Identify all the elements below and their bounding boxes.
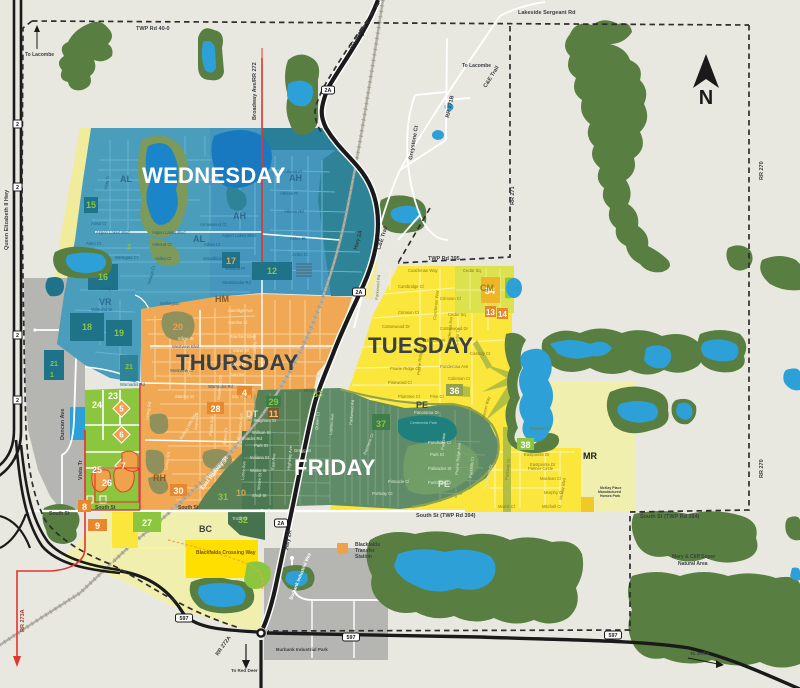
svg-text:Lakeside Sergeant Rd: Lakeside Sergeant Rd xyxy=(518,10,575,16)
svg-text:Pinetree Cl: Pinetree Cl xyxy=(530,426,551,431)
svg-text:Queen Elizabeth II Hwy: Queen Elizabeth II Hwy xyxy=(4,189,10,250)
svg-text:Aspen Lakes Blvd: Aspen Lakes Blvd xyxy=(222,233,256,238)
svg-text:Cassidy Ct: Cassidy Ct xyxy=(470,351,491,356)
svg-text:AL: AL xyxy=(120,174,132,184)
svg-text:Woodbine Ct: Woodbine Ct xyxy=(203,256,228,261)
svg-text:South St (TWP Rd 394): South St (TWP Rd 394) xyxy=(416,513,476,519)
svg-text:RR 270: RR 270 xyxy=(759,161,765,180)
svg-text:597: 597 xyxy=(180,616,189,622)
svg-text:19: 19 xyxy=(114,328,124,338)
svg-text:Prairie Ridge Cl: Prairie Ridge Cl xyxy=(390,366,419,371)
svg-text:Ponderosa Ave: Ponderosa Ave xyxy=(440,364,469,369)
svg-text:6: 6 xyxy=(119,431,124,440)
svg-text:16: 16 xyxy=(98,272,108,282)
svg-text:Silver Dr: Silver Dr xyxy=(230,362,247,367)
svg-text:Sunrise Cl: Sunrise Cl xyxy=(228,320,247,325)
svg-text:2: 2 xyxy=(16,185,19,191)
svg-text:Eastpointe Dr: Eastpointe Dr xyxy=(524,452,550,457)
svg-text:27: 27 xyxy=(142,518,152,528)
svg-text:Valley Cr: Valley Cr xyxy=(155,256,172,261)
svg-text:Park St: Park St xyxy=(430,452,445,457)
svg-text:Park St: Park St xyxy=(254,443,269,448)
svg-text:597: 597 xyxy=(347,635,356,641)
svg-text:9: 9 xyxy=(95,521,100,531)
svg-text:Crimson Ct: Crimson Ct xyxy=(398,310,420,315)
svg-text:Aspen Lakes Blvd: Aspen Lakes Blvd xyxy=(96,230,130,235)
svg-text:Adina Ct: Adina Ct xyxy=(204,242,221,247)
svg-text:RH: RH xyxy=(153,473,166,483)
svg-text:36: 36 xyxy=(449,386,459,396)
svg-text:Portway Ct: Portway Ct xyxy=(372,491,393,496)
svg-text:Maclean Cl: Maclean Cl xyxy=(540,476,561,481)
svg-text:Coleman Cr: Coleman Cr xyxy=(448,376,471,381)
svg-text:Winston Pl: Winston Pl xyxy=(225,266,245,271)
svg-text:RR 271: RR 271 xyxy=(510,186,516,205)
svg-text:25: 25 xyxy=(92,465,102,475)
svg-text:Westview Blvd: Westview Blvd xyxy=(172,344,200,349)
svg-text:38: 38 xyxy=(520,440,530,450)
svg-text:FRIDAY: FRIDAY xyxy=(294,455,376,480)
svg-text:Sunridge Ave: Sunridge Ave xyxy=(228,308,254,313)
svg-text:Crimson Cl: Crimson Cl xyxy=(440,296,461,301)
svg-text:Waghorn St: Waghorn St xyxy=(254,418,277,423)
svg-text:2: 2 xyxy=(16,398,19,404)
svg-text:Wellington: Wellington xyxy=(160,301,180,306)
svg-text:8: 8 xyxy=(82,502,87,512)
svg-text:Centennial Park: Centennial Park xyxy=(410,421,437,425)
svg-text:Silver St: Silver St xyxy=(178,336,194,341)
svg-text:31: 31 xyxy=(218,492,228,502)
svg-text:VR: VR xyxy=(99,297,112,307)
svg-text:Palmer Circle: Palmer Circle xyxy=(528,466,554,471)
svg-text:Anna Ct: Anna Ct xyxy=(91,221,107,226)
svg-text:Broadway Ave: Broadway Ave xyxy=(252,333,257,360)
svg-text:29: 29 xyxy=(268,397,278,407)
svg-text:MR: MR xyxy=(583,451,597,461)
svg-text:23: 23 xyxy=(108,391,118,401)
svg-text:Blackfalds Crossing Way: Blackfalds Crossing Way xyxy=(196,550,256,556)
svg-text:2: 2 xyxy=(16,122,19,128)
svg-text:Cottonwood Dr: Cottonwood Dr xyxy=(382,324,411,329)
svg-text:Valmond St: Valmond St xyxy=(91,307,113,312)
svg-text:Westbrooke Rd: Westbrooke Rd xyxy=(222,280,251,285)
svg-text:Athens Pl: Athens Pl xyxy=(284,169,302,174)
svg-text:Arrowwood Ct: Arrowwood Ct xyxy=(200,222,227,227)
svg-text:597: 597 xyxy=(609,633,618,639)
svg-text:12: 12 xyxy=(267,266,277,276)
svg-text:10: 10 xyxy=(236,488,246,498)
svg-text:Womacks Rd: Womacks Rd xyxy=(120,382,145,387)
svg-text:To Lacombe: To Lacombe xyxy=(462,63,491,69)
svg-text:Stanley St: Stanley St xyxy=(175,394,195,399)
svg-text:Winks St: Winks St xyxy=(250,468,267,473)
svg-text:Pinewood Cl: Pinewood Cl xyxy=(388,380,412,385)
svg-text:2A: 2A xyxy=(356,290,363,296)
svg-text:TWP Rd 395: TWP Rd 395 xyxy=(428,256,460,262)
svg-text:1: 1 xyxy=(50,372,54,379)
svg-text:Pine Cr: Pine Cr xyxy=(430,394,445,399)
svg-text:Silver Dr: Silver Dr xyxy=(233,348,250,353)
svg-text:21: 21 xyxy=(50,361,58,368)
svg-text:14: 14 xyxy=(498,310,507,319)
svg-text:South St: South St xyxy=(95,505,116,511)
svg-text:Parkridge Cr: Parkridge Cr xyxy=(428,480,452,485)
svg-text:Homes Park: Homes Park xyxy=(600,494,620,498)
svg-text:South St: South St xyxy=(49,511,70,517)
svg-text:Cedar Sq: Cedar Sq xyxy=(448,312,466,317)
svg-text:2: 2 xyxy=(127,244,131,251)
svg-text:Westgate Cr: Westgate Cr xyxy=(115,255,139,260)
svg-text:Panorama Dr: Panorama Dr xyxy=(414,410,440,415)
svg-text:Aztec St: Aztec St xyxy=(290,236,306,241)
svg-text:BC: BC xyxy=(199,524,212,534)
svg-text:To Lacombe: To Lacombe xyxy=(25,52,54,58)
svg-text:Indiana St: Indiana St xyxy=(250,455,270,460)
svg-text:Gregg St: Gregg St xyxy=(294,448,312,453)
svg-text:Cottonwood Dr: Cottonwood Dr xyxy=(440,326,469,331)
svg-text:20: 20 xyxy=(173,322,183,332)
svg-text:Vista Tr: Vista Tr xyxy=(78,459,84,480)
svg-text:21: 21 xyxy=(125,364,133,371)
svg-text:N: N xyxy=(699,87,713,109)
svg-text:24: 24 xyxy=(92,400,102,410)
svg-text:Stanley St: Stanley St xyxy=(232,394,252,399)
svg-text:2A: 2A xyxy=(325,88,332,94)
svg-text:Athens Rd: Athens Rd xyxy=(284,209,304,214)
svg-text:To Joffre: To Joffre xyxy=(690,651,710,656)
svg-text:AH: AH xyxy=(233,211,246,221)
svg-text:RR 270: RR 270 xyxy=(759,459,765,478)
svg-text:AH: AH xyxy=(289,173,302,183)
svg-text:Churchill Pl: Churchill Pl xyxy=(424,338,445,343)
svg-text:Pinnacle Cl: Pinnacle Cl xyxy=(388,479,409,484)
svg-text:Aztec Cr: Aztec Cr xyxy=(292,252,309,257)
svg-text:South St (TWP Rd 394): South St (TWP Rd 394) xyxy=(640,514,700,520)
svg-text:Cambridge Cl: Cambridge Cl xyxy=(398,284,424,289)
svg-text:26: 26 xyxy=(102,478,112,488)
svg-text:Natural Area: Natural Area xyxy=(678,561,708,567)
svg-text:Cedar Sq: Cedar Sq xyxy=(463,268,481,273)
svg-text:South St: South St xyxy=(178,505,199,511)
svg-text:28: 28 xyxy=(210,404,220,414)
svg-text:Mary & Cliff Soper: Mary & Cliff Soper xyxy=(672,554,715,560)
svg-text:15: 15 xyxy=(86,200,96,210)
svg-text:Willson St: Willson St xyxy=(252,430,271,435)
svg-text:Broadway Ave/RR 272: Broadway Ave/RR 272 xyxy=(252,62,258,120)
svg-text:Duncan Ave: Duncan Ave xyxy=(60,409,66,440)
svg-text:Palisades St: Palisades St xyxy=(428,466,452,471)
svg-text:CM: CM xyxy=(480,283,494,293)
svg-text:Almond Ct: Almond Ct xyxy=(152,242,172,247)
svg-text:TWP Rd 40-0: TWP Rd 40-0 xyxy=(136,26,170,32)
svg-text:37: 37 xyxy=(376,419,386,429)
svg-text:7: 7 xyxy=(121,462,126,471)
svg-text:17: 17 xyxy=(226,256,236,266)
svg-text:WEDNESDAY: WEDNESDAY xyxy=(142,163,286,188)
svg-text:Gregg St: Gregg St xyxy=(304,388,322,393)
svg-text:13: 13 xyxy=(486,308,495,317)
svg-text:PE: PE xyxy=(416,400,428,410)
svg-text:18: 18 xyxy=(82,322,92,332)
svg-text:30: 30 xyxy=(173,486,183,496)
svg-text:Mitchell Cr: Mitchell Cr xyxy=(542,504,562,509)
svg-text:Athens Pl: Athens Pl xyxy=(280,191,298,196)
svg-text:Morris Cl: Morris Cl xyxy=(498,504,515,509)
svg-text:Arlen Ct: Arlen Ct xyxy=(86,241,102,246)
svg-text:HM: HM xyxy=(215,294,229,304)
svg-text:5: 5 xyxy=(119,405,124,414)
svg-text:2: 2 xyxy=(16,333,19,339)
svg-text:Aspen Lakes Blvd: Aspen Lakes Blvd xyxy=(152,230,186,235)
svg-text:Piper Cl: Piper Cl xyxy=(536,440,551,445)
svg-text:Sunrise: Sunrise xyxy=(230,372,245,377)
svg-text:RR 273A: RR 273A xyxy=(20,609,26,632)
svg-text:Valley Cr: Valley Cr xyxy=(100,286,117,291)
svg-text:Trout St: Trout St xyxy=(232,516,248,521)
svg-text:Shull St: Shull St xyxy=(252,493,267,498)
svg-text:2A: 2A xyxy=(278,521,285,527)
svg-text:Burbank Industrial Park: Burbank Industrial Park xyxy=(276,647,328,652)
svg-text:To Red Deer: To Red Deer xyxy=(231,668,258,673)
svg-text:Plumtree Cr: Plumtree Cr xyxy=(398,394,421,399)
svg-text:Coachman Way: Coachman Way xyxy=(408,268,439,273)
svg-text:Station: Station xyxy=(355,554,372,560)
